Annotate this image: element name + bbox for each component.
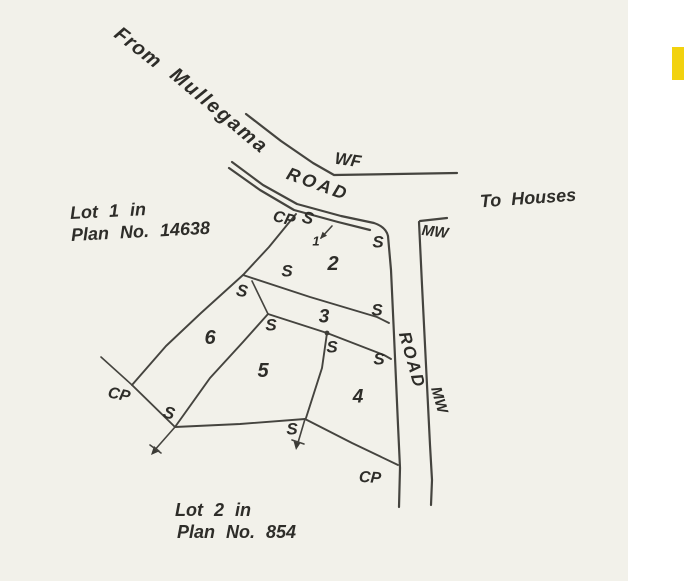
parcel-4-label: 4 <box>352 387 364 408</box>
wf-label: WF <box>334 149 363 172</box>
survey-plan-canvas: From Mullegama WF ROAD To Houses MW ROAD… <box>0 0 685 581</box>
s-mark-lot4-north: S <box>326 338 338 357</box>
s-mark-south: S <box>286 420 298 439</box>
lot1-note-line1: Lot 1 in <box>69 199 146 223</box>
s-mark-lot2-west: S <box>281 262 293 281</box>
cp-mark-bottom-right: CP <box>358 469 382 488</box>
lot2-note-line2: Plan No. 854 <box>177 522 296 542</box>
parcel-1-label: 1 <box>312 234 319 249</box>
parcel-3-label: 3 <box>319 307 330 328</box>
scanned-survey-plan: From Mullegama WF ROAD To Houses MW ROAD… <box>0 0 685 581</box>
s-mark-road-bend: S <box>372 233 384 252</box>
s-mark-lot3-east: S <box>371 301 383 320</box>
parcel-5-label: 5 <box>257 360 269 382</box>
highlight-marker-icon <box>672 47 684 80</box>
s-mark-lot4-road: S <box>373 350 385 369</box>
scan-margin <box>628 0 685 581</box>
lot2-note-line1: Lot 2 in <box>175 500 251 520</box>
mw-label-top: MW <box>421 222 451 242</box>
s-mark-lot3-west: S <box>265 316 277 335</box>
paper-sheet <box>0 0 628 581</box>
junction-dot <box>325 331 330 336</box>
parcel-6-label: 6 <box>204 327 216 349</box>
parcel-2-label: 2 <box>326 253 338 275</box>
